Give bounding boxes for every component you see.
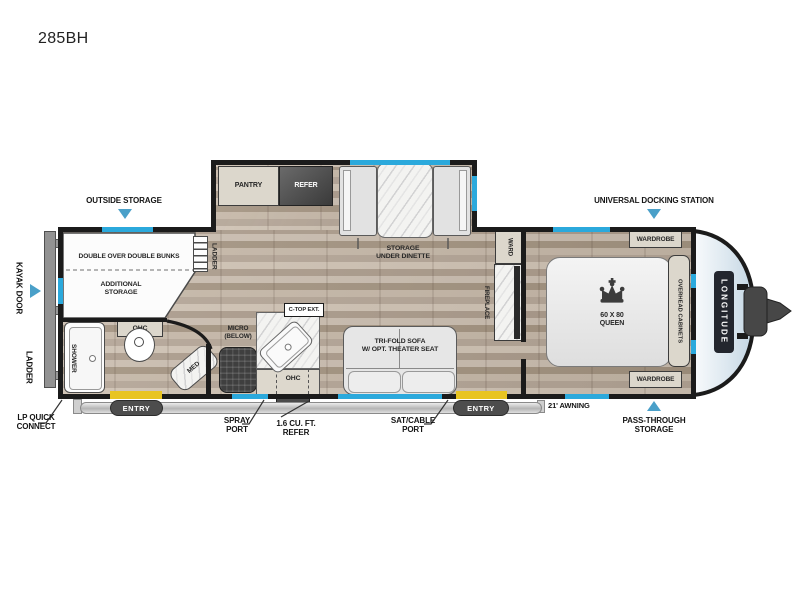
sat-cable-port-label: SAT/CABLE PORT <box>384 416 442 434</box>
lp-quick-connect-label: LP QUICK CONNECT <box>5 413 67 431</box>
refer-pointer-line <box>281 401 309 417</box>
brand-label: LONGITUDE <box>720 279 729 344</box>
floorplan-canvas: 285BH DOUBLE OVER DOUBLE BUNKS ADDITIONA… <box>0 0 800 600</box>
outside-storage-label: OUTSIDE STORAGE <box>74 196 174 205</box>
pass-through-label: PASS-THROUGH STORAGE <box>619 416 689 434</box>
brand-badge: LONGITUDE <box>714 271 734 353</box>
universal-docking-arrow-icon <box>647 209 661 219</box>
entry-badge-right: ENTRY <box>453 400 509 416</box>
kayak-door-label: KAYAK DOOR <box>12 260 26 316</box>
rear-ladder-label: LADDER <box>22 348 36 386</box>
bath-door-swing-arc <box>167 321 211 349</box>
entry-left-label: ENTRY <box>123 404 151 413</box>
universal-docking-label: UNIVERSAL DOCKING STATION <box>579 196 729 205</box>
pass-through-arrow-icon <box>647 401 661 411</box>
overlay-lines <box>0 0 800 600</box>
outside-storage-arrow-icon <box>118 209 132 219</box>
kayak-door-arrow-icon <box>30 284 41 298</box>
exterior-refer-label: 1.6 CU. FT. REFER <box>265 419 327 437</box>
page-title: 285BH <box>38 30 88 48</box>
awning-label: 21' AWNING <box>548 402 618 411</box>
spray-port-label: SPRAY PORT <box>212 416 262 434</box>
entry-badge-left: ENTRY <box>110 400 163 416</box>
entry-right-label: ENTRY <box>467 404 495 413</box>
